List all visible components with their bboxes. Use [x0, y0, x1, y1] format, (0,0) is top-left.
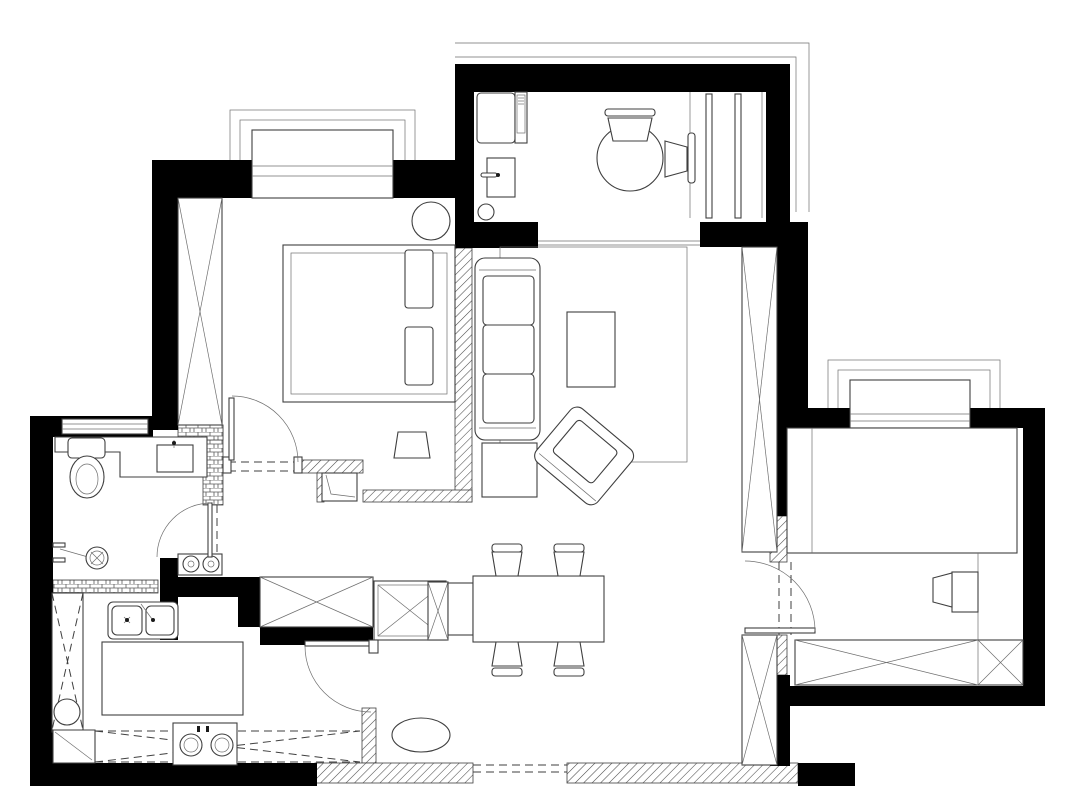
pillow — [405, 250, 433, 308]
floor-plan-canvas — [0, 0, 1080, 786]
sofa-cushion — [483, 276, 534, 325]
dining-chair — [492, 552, 522, 576]
wall-bed2-left-lower — [777, 675, 790, 706]
oval-rug — [392, 718, 450, 752]
dining-chair-back — [554, 668, 584, 676]
sofa-cushion — [483, 325, 534, 374]
fridge-balcony — [477, 93, 515, 143]
faucet-handle — [481, 173, 497, 177]
bed-bedroom2 — [787, 428, 1017, 553]
chair-balcony-top — [608, 118, 652, 141]
window-bedroom1 — [252, 130, 393, 198]
low-wall-niche-bottom — [363, 490, 472, 502]
wall-bed2-top-left — [777, 408, 850, 428]
wall-balcony-right — [766, 64, 790, 242]
dining-table-extension — [448, 583, 473, 635]
burner — [211, 734, 233, 756]
wall-bed1-top-right — [393, 160, 460, 198]
wall-kitchen-entry-c — [238, 597, 260, 627]
door-leaf-bathroom — [208, 503, 212, 557]
bathroom-faucet-dot — [172, 441, 176, 445]
sink-drain-dot — [125, 618, 129, 622]
kitchen-door-column — [362, 708, 376, 763]
side-table — [482, 443, 537, 497]
balcony-slat-panel — [735, 94, 741, 218]
window-bathroom — [62, 419, 148, 434]
wall-bed1-top-left — [152, 160, 252, 198]
chair-back — [605, 109, 655, 116]
kitchen-sink-basin — [146, 606, 174, 635]
wall-balcony-bottom-right — [700, 222, 808, 247]
stove-knob — [197, 726, 200, 732]
wall-west-exterior — [30, 416, 53, 786]
chair-back — [688, 133, 695, 183]
hob-ring — [203, 556, 219, 572]
door-leaf-bedroom1 — [229, 398, 234, 460]
toilet-tank — [68, 438, 105, 458]
toilet-bowl — [70, 456, 104, 498]
wardrobe-bedroom2 — [795, 640, 1023, 685]
door-leaf-kitchen — [305, 641, 371, 646]
kitchen-counter — [102, 642, 243, 715]
dining-chair-back — [492, 668, 522, 676]
balcony-slat-panel — [706, 94, 712, 218]
wall-balcony-bottom-left — [455, 222, 538, 248]
pantry-circle — [54, 699, 80, 725]
desk-bedroom2 — [952, 572, 978, 612]
faucet-dot — [496, 173, 500, 177]
chair-bedroom2 — [933, 573, 952, 607]
south-wall-hatch-right — [567, 763, 798, 783]
shower-bracket — [53, 558, 65, 562]
floor-plan-page — [0, 0, 1080, 786]
shower-bracket — [53, 543, 65, 547]
dining-chair — [554, 552, 584, 576]
floor-drain — [478, 204, 494, 220]
dining-chair-back — [554, 544, 584, 552]
low-wall-entry — [298, 460, 363, 473]
wall-south-kitchen — [30, 763, 317, 786]
door-frame-kitchen — [369, 640, 378, 653]
stove-knob — [206, 726, 209, 732]
dining-chair — [554, 642, 584, 666]
wall-south-right-end — [798, 763, 855, 786]
round-stool-bedroom1 — [412, 202, 450, 240]
coffee-table — [567, 312, 615, 387]
wall-bed2-right — [1023, 408, 1045, 706]
wall-balcony-top — [455, 64, 786, 92]
hob-ring — [183, 556, 199, 572]
door-leaf-bedroom2 — [745, 628, 815, 633]
dining-table — [473, 576, 604, 642]
dining-chair — [492, 642, 522, 666]
bench-bedroom1 — [394, 432, 430, 458]
wall-bed1-left — [152, 196, 178, 430]
kitchen-faucet-dot — [151, 618, 155, 622]
south-wall-hatch-left — [315, 763, 473, 783]
bathroom-sink — [157, 445, 193, 472]
sofa-cushion — [483, 374, 534, 423]
tiled-wall-bathroom-kitchen — [53, 580, 158, 593]
dining-chair-back — [492, 544, 522, 552]
wall-kitchen-entry-b — [177, 577, 260, 597]
partition-bedroom1-living — [455, 248, 472, 502]
chair-balcony-right — [665, 141, 687, 177]
wall-bed2-bottom — [790, 686, 1045, 706]
burner — [180, 734, 202, 756]
wall-east-of-balcony — [777, 247, 808, 408]
pillow — [405, 327, 433, 385]
